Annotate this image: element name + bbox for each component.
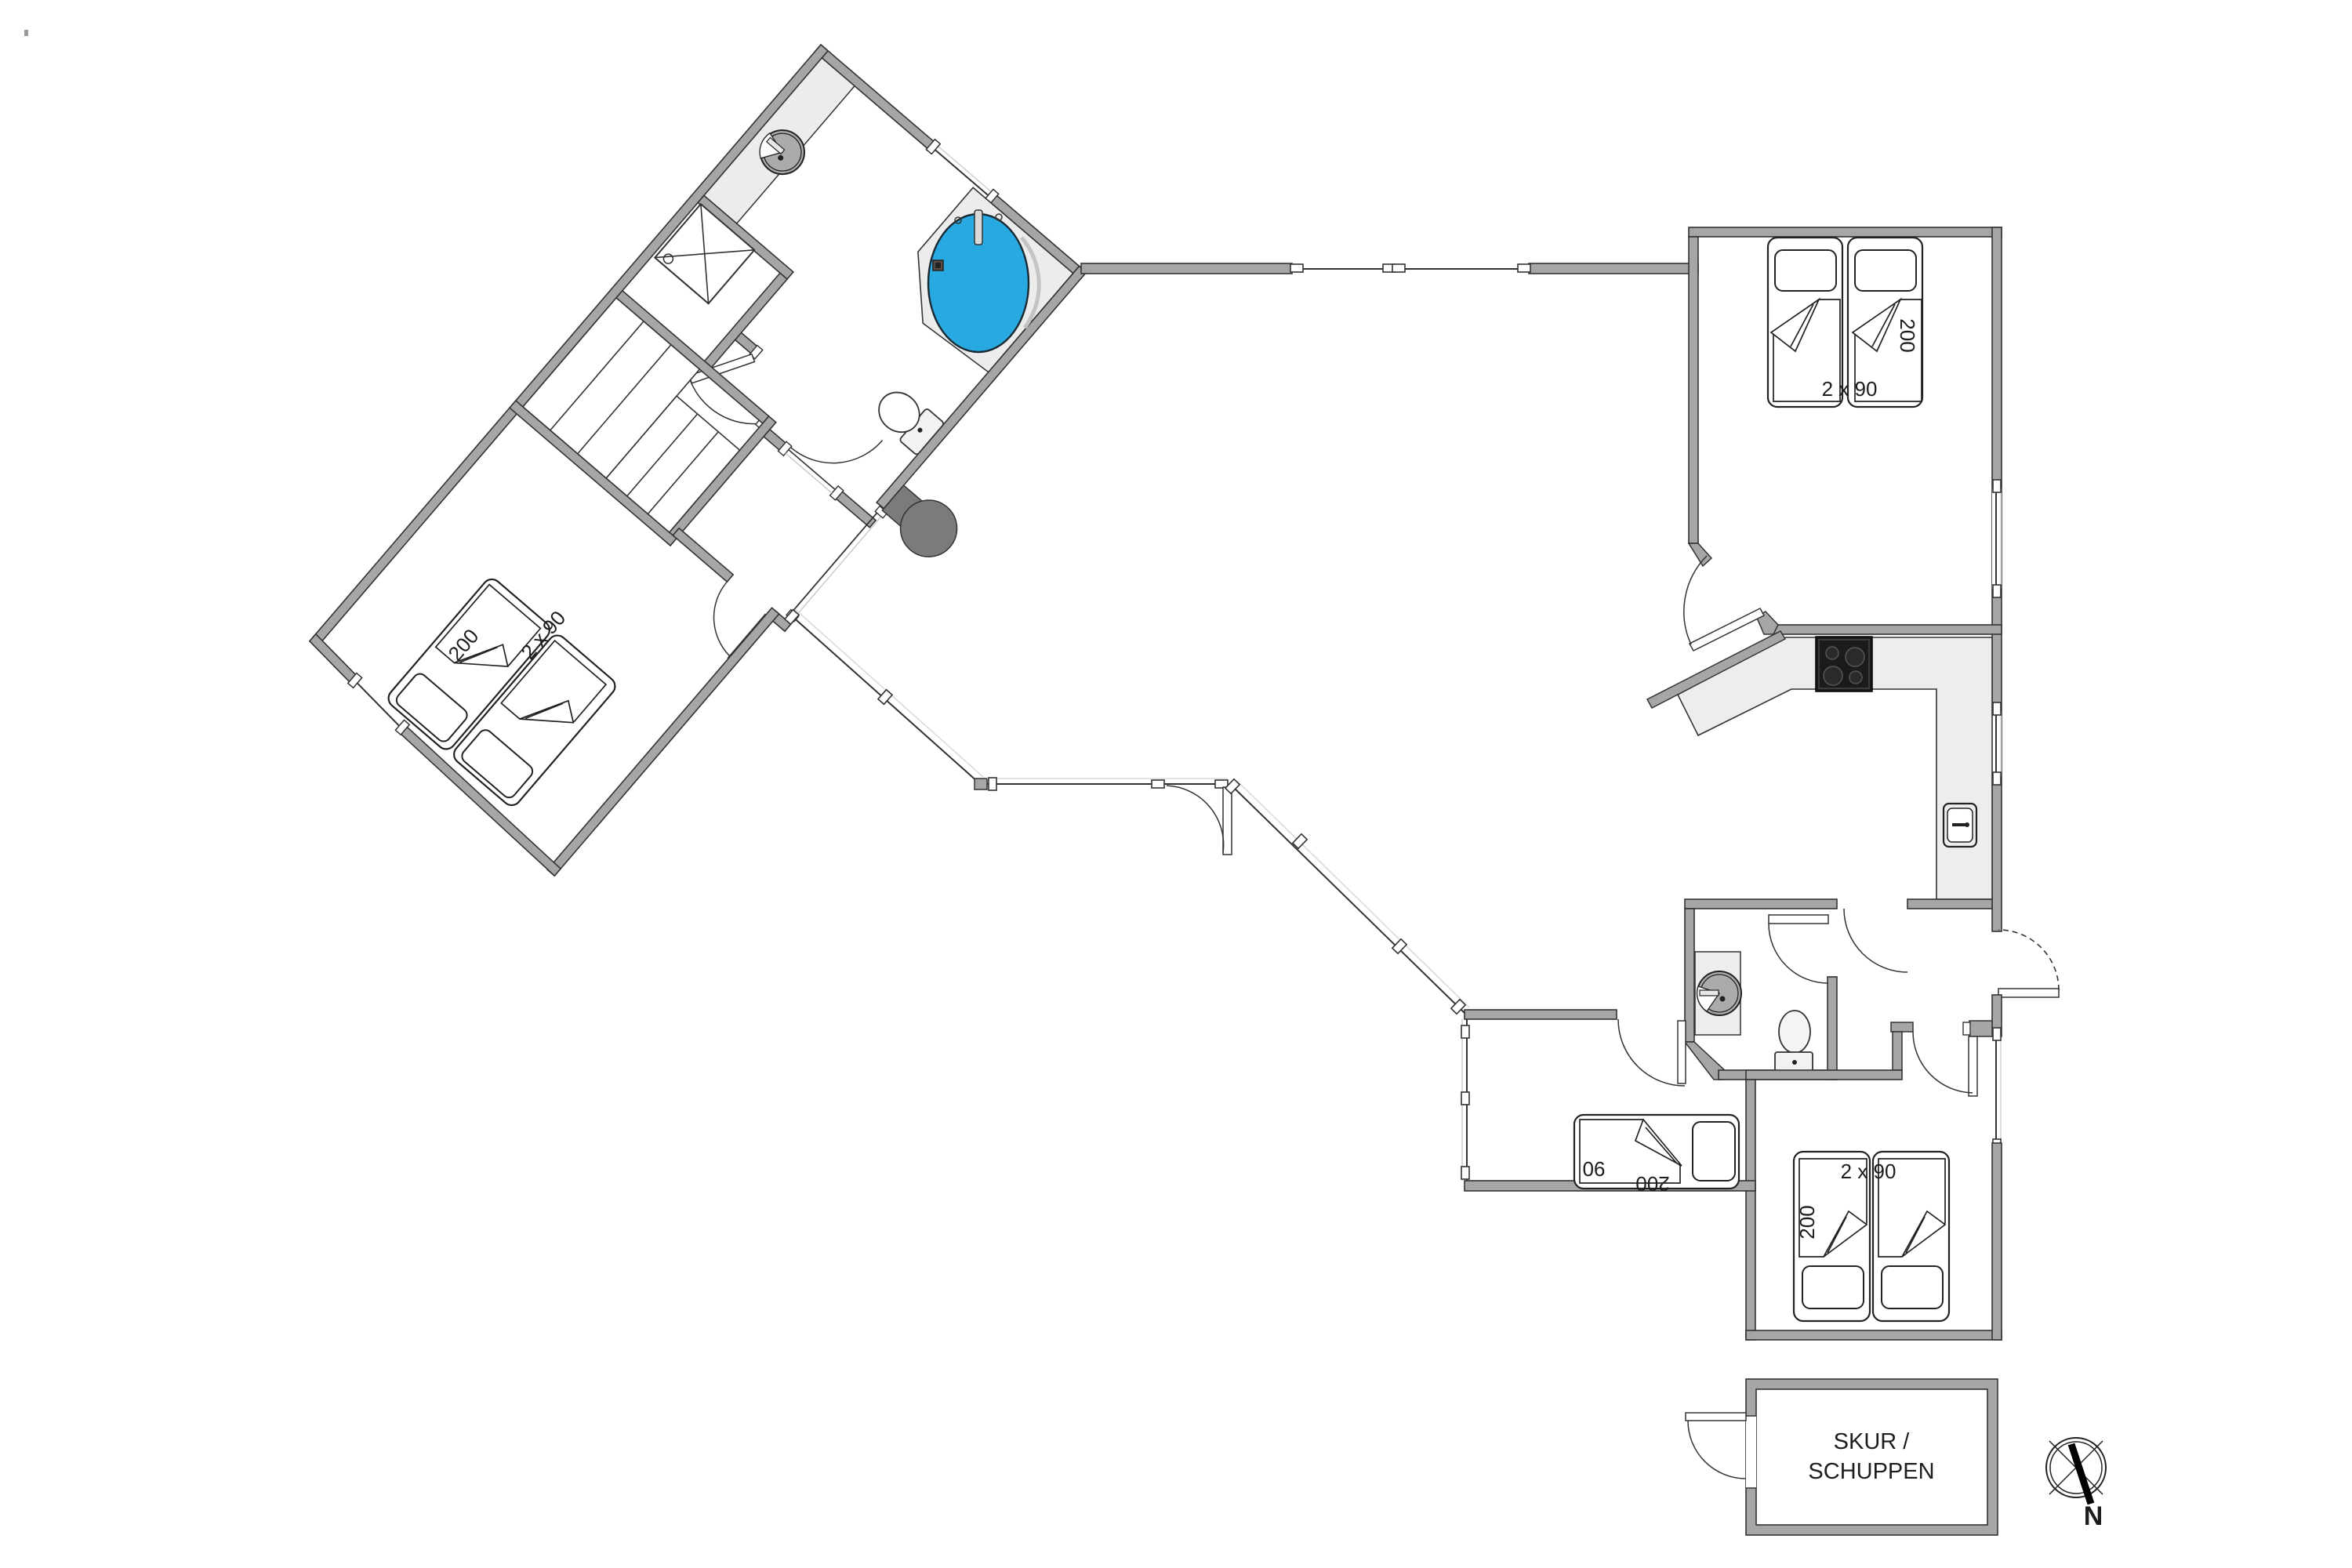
svg-text:200: 200 <box>1635 1172 1669 1196</box>
svg-text:2 x 90: 2 x 90 <box>1841 1160 1896 1183</box>
svg-text:SKUR /: SKUR / <box>1834 1429 1911 1454</box>
svg-text:2 x 90: 2 x 90 <box>1822 377 1878 401</box>
svg-text:90: 90 <box>1583 1157 1606 1181</box>
svg-text:N: N <box>2084 1501 2103 1531</box>
svg-text:SCHUPPEN: SCHUPPEN <box>1808 1459 1934 1484</box>
svg-text:200: 200 <box>1896 318 1919 352</box>
svg-text:200: 200 <box>1795 1205 1819 1239</box>
